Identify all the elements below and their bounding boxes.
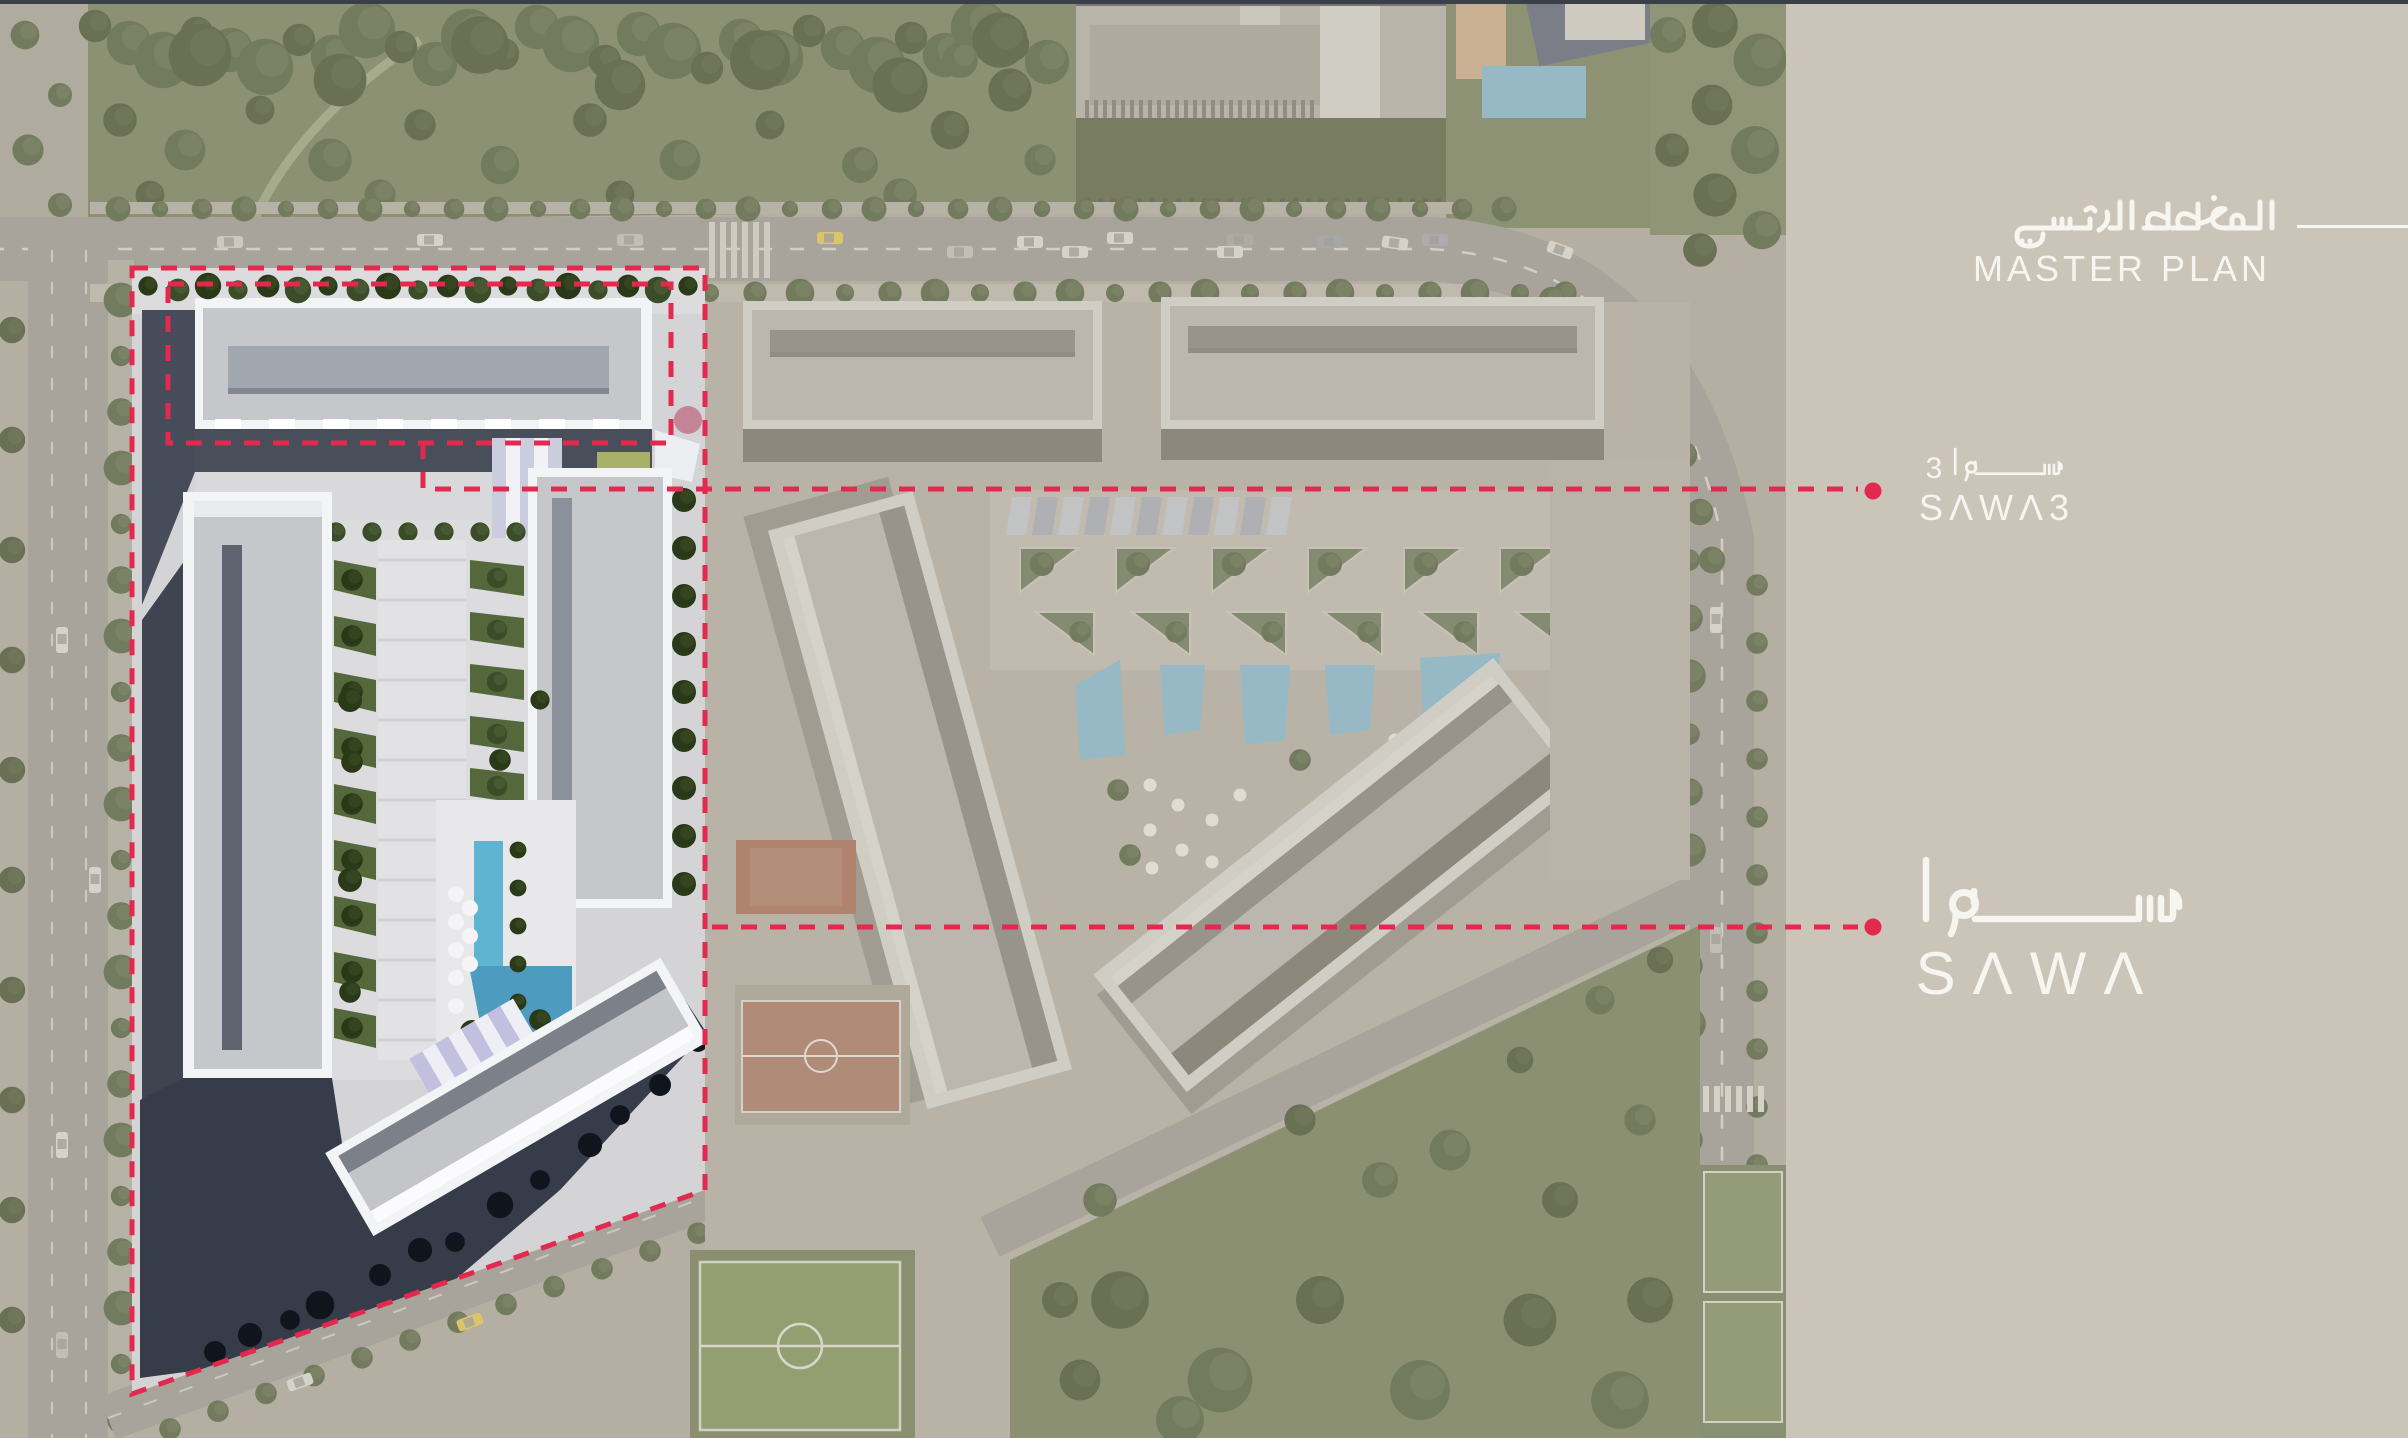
svg-text:3: 3 — [1926, 452, 1943, 485]
svg-text:SΛWΛ3: SΛWΛ3 — [1919, 487, 2075, 528]
svg-text:SΛWΛ: SΛWΛ — [1916, 940, 2161, 1007]
svg-text:MASTER PLAN: MASTER PLAN — [1973, 248, 2271, 289]
